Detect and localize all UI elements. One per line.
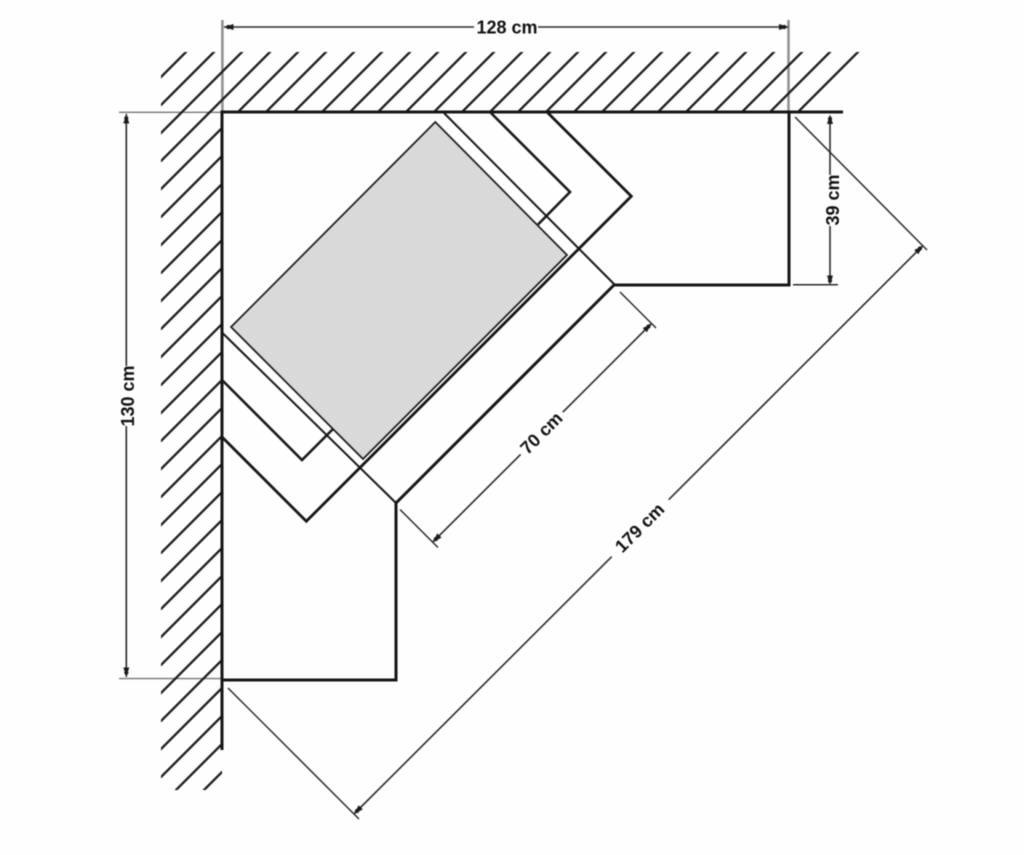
svg-text:39 cm: 39 cm [823, 174, 843, 225]
svg-text:130 cm: 130 cm [118, 365, 138, 426]
svg-text:128 cm: 128 cm [476, 18, 537, 38]
